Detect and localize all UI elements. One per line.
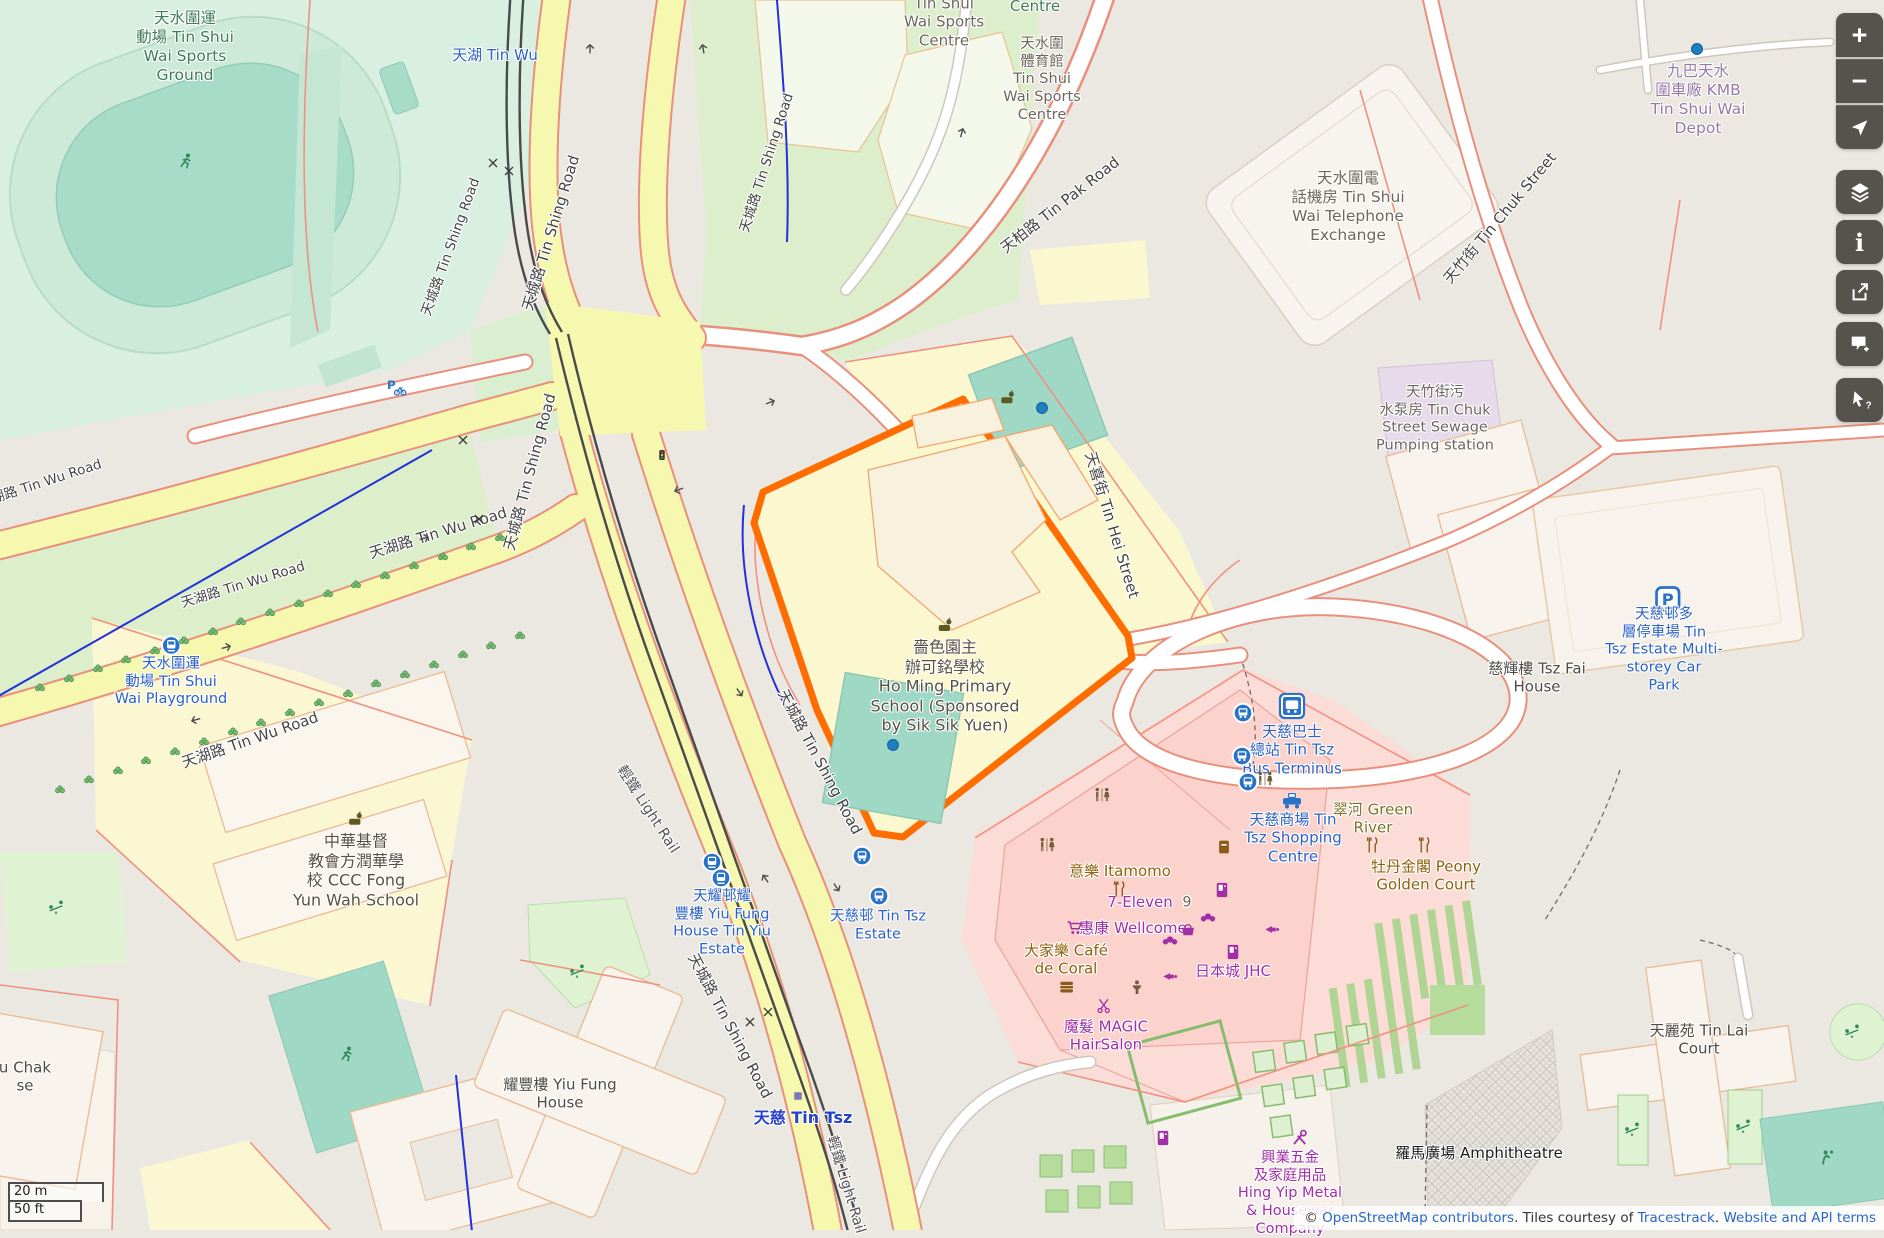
attribution-copyright: © [1304,1210,1322,1226]
terms-link[interactable]: Website and API terms [1723,1210,1876,1226]
attribution-middle: . Tiles courtesy of [1514,1210,1638,1226]
locate-button[interactable] [1836,105,1883,149]
info-button[interactable]: i [1836,220,1883,264]
zoom-in-button[interactable]: + [1836,13,1883,57]
svg-text:?: ? [1865,400,1871,411]
share-button[interactable] [1836,270,1883,314]
map-canvas[interactable]: 天水圍運動場 Tin ShuiWai SportsGroundTin ShuiW… [0,0,1884,1230]
zoom-in-icon: + [1852,20,1868,51]
add-note-button[interactable] [1836,322,1883,366]
map-render-layer [0,0,1884,1230]
scale-imperial: 50 ft [8,1200,82,1222]
scale-control: 20 m 50 ft [8,1182,104,1222]
tracestrack-link[interactable]: Tracestrack [1638,1210,1715,1226]
attribution-bar: © OpenStreetMap contributors. Tiles cour… [1294,1206,1884,1230]
zoom-out-icon: − [1852,66,1868,97]
info-icon: i [1855,228,1864,257]
zoom-out-button[interactable]: − [1836,59,1883,103]
layers-button[interactable] [1836,170,1883,214]
osm-contributors-link[interactable]: OpenStreetMap contributors [1322,1210,1514,1226]
query-features-button[interactable]: ? [1836,378,1883,422]
